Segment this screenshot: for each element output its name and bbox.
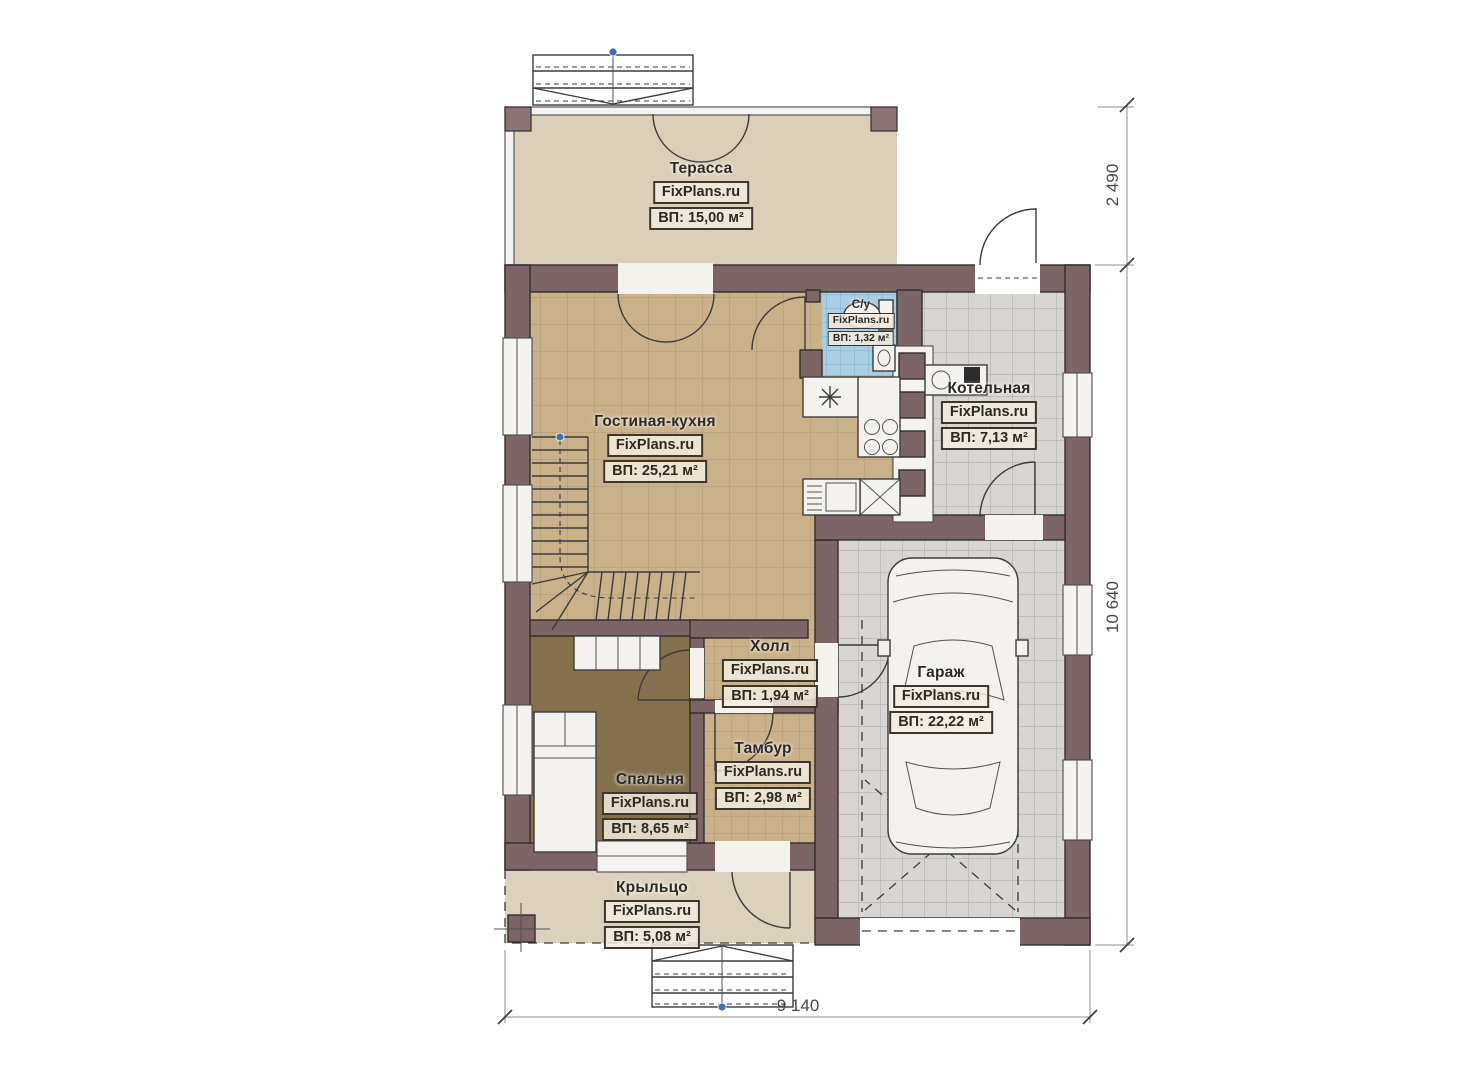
dimension-right-upper: 2 490 <box>1103 164 1123 207</box>
brand-box: FixPlans.ru <box>607 434 703 457</box>
room-name: Гостиная-кухня <box>594 413 716 431</box>
room-label-bathroom: С/у FixPlans.ru ВП: 1,32 м² <box>828 299 895 346</box>
room-name: Котельная <box>948 380 1031 398</box>
room-label-terrace: Терасса FixPlans.ru ВП: 15,00 м² <box>649 160 753 230</box>
room-name: Холл <box>750 638 790 656</box>
room-name: Спальня <box>616 771 684 789</box>
floor-plan-canvas: Терасса FixPlans.ru ВП: 15,00 м² С/у Fix… <box>0 0 1473 1080</box>
sink-symbol <box>819 386 841 408</box>
area-box: ВП: 5,08 м² <box>604 926 700 949</box>
brand-box: FixPlans.ru <box>653 181 749 204</box>
area-box: ВП: 25,21 м² <box>603 460 707 483</box>
dimension-right-lower: 10 640 <box>1103 581 1123 633</box>
area-box: ВП: 15,00 м² <box>649 207 753 230</box>
room-label-porch: Крыльцо FixPlans.ru ВП: 5,08 м² <box>604 879 700 949</box>
brand-box: FixPlans.ru <box>941 401 1037 424</box>
bathroom-sink <box>873 345 895 371</box>
area-box: ВП: 1,94 м² <box>722 685 818 708</box>
porch-steps <box>652 945 793 1011</box>
room-name: Гараж <box>917 664 964 682</box>
room-name: Крыльцо <box>616 879 688 897</box>
area-box: ВП: 2,98 м² <box>715 787 811 810</box>
area-box: ВП: 22,22 м² <box>889 711 993 734</box>
area-box: ВП: 1,32 м² <box>828 331 894 347</box>
room-label-garage: Гараж FixPlans.ru ВП: 22,22 м² <box>889 664 993 734</box>
dimension-bottom: 9 140 <box>777 996 820 1016</box>
room-label-hall: Холл FixPlans.ru ВП: 1,94 м² <box>722 638 818 708</box>
room-label-living-kitchen: Гостиная-кухня FixPlans.ru ВП: 25,21 м² <box>594 413 716 483</box>
bed <box>534 712 596 852</box>
brand-box: FixPlans.ru <box>893 685 989 708</box>
brand-box: FixPlans.ru <box>604 900 700 923</box>
brand-box: FixPlans.ru <box>722 659 818 682</box>
wardrobe <box>574 636 660 670</box>
brand-box: FixPlans.ru <box>715 761 811 784</box>
room-label-vestibule: Тамбур FixPlans.ru ВП: 2,98 м² <box>715 740 811 810</box>
room-name: Терасса <box>670 160 733 178</box>
room-label-boiler-room: Котельная FixPlans.ru ВП: 7,13 м² <box>941 380 1037 450</box>
area-box: ВП: 7,13 м² <box>941 427 1037 450</box>
area-box: ВП: 8,65 м² <box>602 818 698 841</box>
room-name: Тамбур <box>734 740 791 758</box>
room-label-bedroom: Спальня FixPlans.ru ВП: 8,65 м² <box>602 771 698 841</box>
terrace-steps <box>533 48 693 105</box>
brand-box: FixPlans.ru <box>602 792 698 815</box>
room-name: С/у <box>852 299 871 311</box>
brand-box: FixPlans.ru <box>828 313 895 329</box>
